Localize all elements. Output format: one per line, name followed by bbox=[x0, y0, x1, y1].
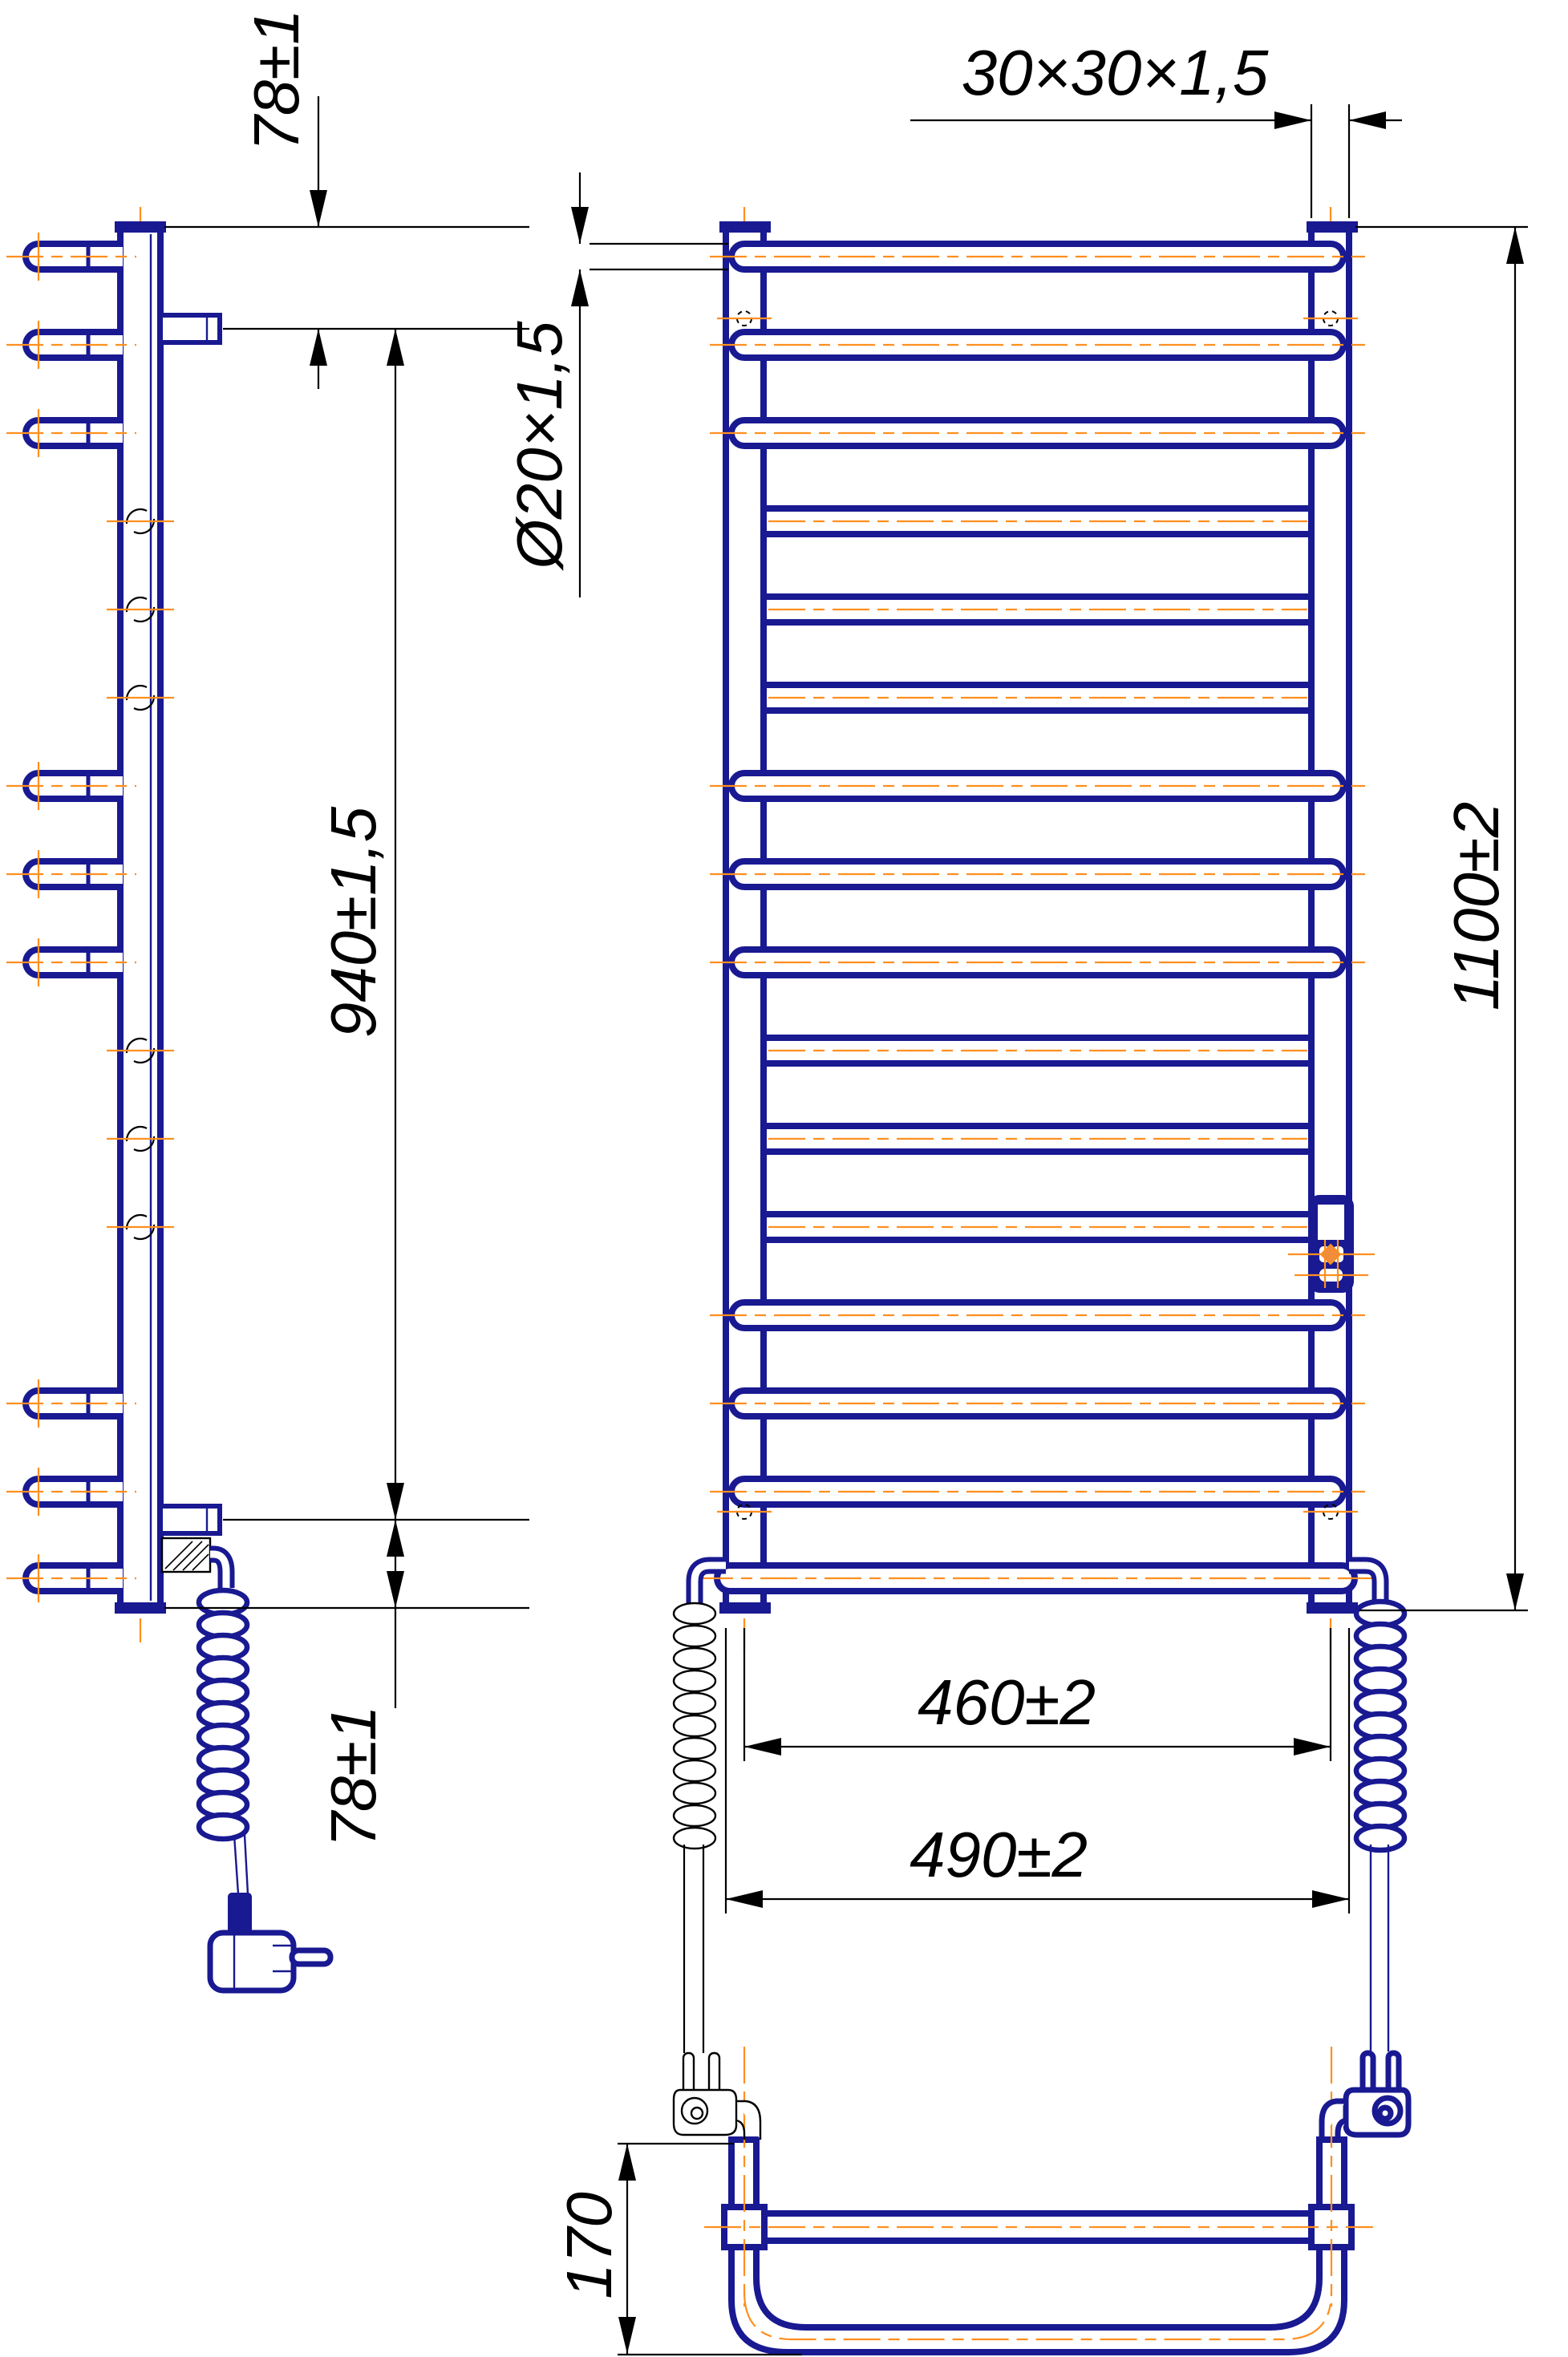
rung-protruding bbox=[710, 244, 1365, 269]
rung-side bbox=[6, 233, 136, 281]
heater-element bbox=[162, 1538, 210, 1572]
dimension-label-overall-height: 1100±2 bbox=[1440, 802, 1512, 1010]
rung-inner bbox=[764, 1214, 1311, 1240]
wall-bracket-bottom bbox=[160, 1506, 220, 1533]
power-plug-side-icon bbox=[210, 1893, 330, 1990]
dimension-label-post-profile: 30×30×1,5 bbox=[962, 37, 1269, 108]
rung-protruding bbox=[710, 950, 1365, 975]
cord bbox=[234, 1835, 238, 1894]
side-post-bottom-cap bbox=[115, 1602, 166, 1614]
technical-drawing-towel-rail: 78±1 30×30×1,5 Ø20×1,5 940±1,5 1100±2 46… bbox=[0, 0, 1568, 2357]
bottom-view bbox=[674, 2047, 1408, 2352]
right-post-bottom-cap bbox=[1307, 1602, 1358, 1614]
rung-side bbox=[6, 321, 136, 369]
dimension-label-bottom-offset: 78±1 bbox=[318, 1705, 389, 1847]
display-window bbox=[1318, 1205, 1344, 1240]
power-plug-left-icon bbox=[674, 2053, 760, 2140]
dimension-label-rung-diameter: Ø20×1,5 bbox=[504, 321, 575, 572]
cord bbox=[245, 1835, 248, 1894]
rung-side bbox=[6, 1379, 136, 1428]
rung-inner bbox=[764, 1126, 1311, 1152]
centerline-curved bbox=[744, 2292, 1331, 2339]
rung-side bbox=[6, 762, 136, 810]
rung-protruding bbox=[710, 1391, 1365, 1416]
rung-protruding bbox=[710, 332, 1365, 358]
left-post-bottom-cap bbox=[719, 1602, 771, 1614]
rung-side bbox=[6, 938, 136, 986]
coiled-cable-side bbox=[199, 1590, 247, 1839]
u-collector bbox=[731, 2247, 1344, 2352]
bottom-collector bbox=[696, 1565, 1376, 1591]
rung-inner bbox=[764, 1038, 1311, 1063]
coiled-cable-right bbox=[1356, 1602, 1404, 1850]
dimension-label-rung-span: 460±2 bbox=[918, 1667, 1096, 1738]
front-view bbox=[674, 207, 1404, 2053]
coiled-cable-left bbox=[674, 1603, 715, 1849]
side-view bbox=[6, 207, 330, 1990]
dimension-label-bracket-span: 940±1,5 bbox=[318, 806, 389, 1038]
rung-side bbox=[6, 850, 136, 898]
rung-protruding bbox=[710, 773, 1365, 799]
rung-protruding bbox=[710, 861, 1365, 887]
wall-bracket-top bbox=[160, 315, 220, 342]
dimension-label-overall-width: 490±2 bbox=[910, 1819, 1088, 1890]
rung-protruding bbox=[710, 1479, 1365, 1505]
rung-side bbox=[6, 1468, 136, 1516]
dimension-label-depth: 170 bbox=[553, 2192, 625, 2298]
control-unit bbox=[1288, 1195, 1375, 1293]
power-plug-right-icon bbox=[1322, 2053, 1408, 2140]
rung-inner bbox=[764, 685, 1311, 711]
rung-protruding bbox=[710, 1302, 1365, 1328]
side-post-top-cap bbox=[115, 221, 166, 233]
dimension-label-top-offset: 78±1 bbox=[241, 9, 312, 151]
side-post bbox=[120, 227, 160, 1608]
left-post-top-cap bbox=[719, 221, 771, 233]
rung-inner bbox=[764, 597, 1311, 622]
right-post-top-cap bbox=[1307, 221, 1358, 233]
side-cable-elbow bbox=[210, 1554, 226, 1588]
rung-side bbox=[6, 409, 136, 457]
rung-inner bbox=[764, 508, 1311, 534]
bottom-collector-side bbox=[6, 1554, 136, 1602]
rung-protruding bbox=[710, 420, 1365, 446]
